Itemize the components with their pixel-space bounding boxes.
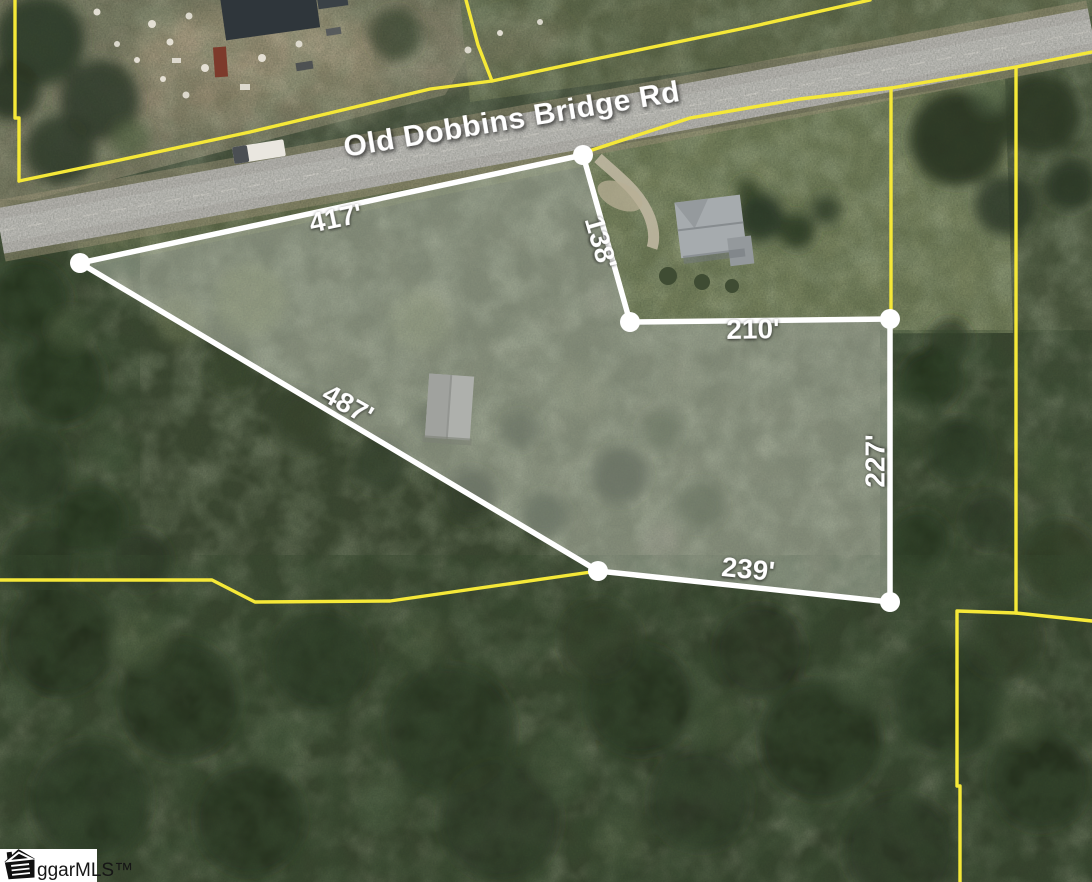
- red-trailer: [213, 47, 228, 78]
- vertex-marker: [880, 309, 900, 329]
- vertex-marker: [620, 312, 640, 332]
- vertex-marker: [880, 592, 900, 612]
- satellite-map-canvas: 417'487'239'227'210'138'Old Dobbins Brid…: [0, 0, 1092, 882]
- vertex-marker: [70, 253, 90, 273]
- edge-label-239: 239': [720, 551, 776, 587]
- edge-label-227: 227': [859, 434, 890, 487]
- vertex-marker: [573, 145, 593, 165]
- watermark-text: ggarMLS™: [37, 860, 133, 881]
- vertex-marker: [588, 561, 608, 581]
- edge-label-210: 210': [726, 313, 780, 345]
- aerial-map-image: 417'487'239'227'210'138'Old Dobbins Brid…: [0, 0, 1092, 882]
